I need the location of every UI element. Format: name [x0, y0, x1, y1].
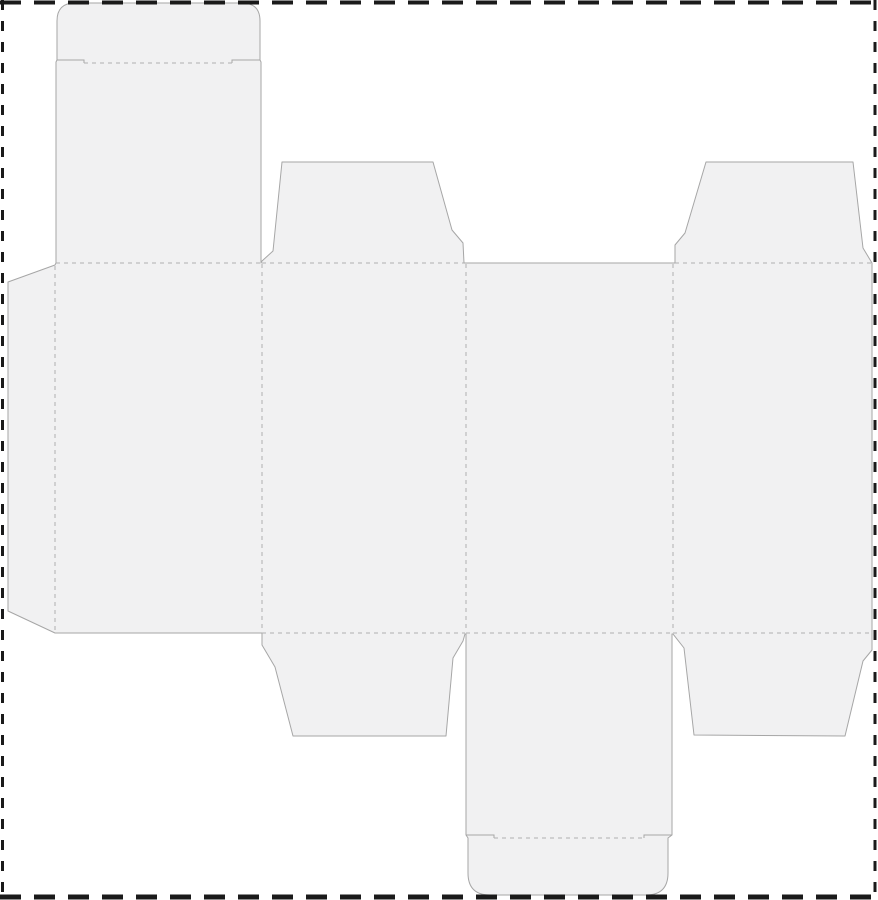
dieline-svg — [0, 0, 878, 900]
dieline-shape-group — [8, 3, 872, 895]
dieline-outline — [8, 3, 872, 895]
dieline-canvas — [0, 0, 878, 900]
